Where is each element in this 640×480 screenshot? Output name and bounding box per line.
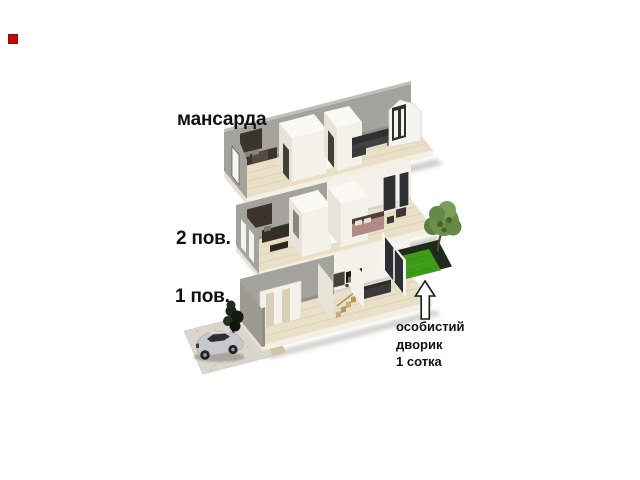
red-marker: [8, 34, 18, 44]
label-floor2: 2 пов.: [176, 228, 231, 250]
floor2-window: [399, 171, 409, 208]
annotation-line-1: особистий: [396, 318, 465, 336]
annotation-line-3: 1 сотка: [396, 353, 465, 371]
courtyard-annotation: особистий дворик 1 сотка: [396, 318, 465, 371]
label-floor1: 1 пов.: [175, 286, 230, 308]
annotation-line-2: дворик: [396, 336, 465, 354]
floor2-window: [383, 174, 396, 212]
floorplan-poster: мансарда 2 пов. 1 пов. особистий дворик …: [0, 0, 640, 480]
label-attic: мансарда: [177, 109, 266, 131]
floorplan-scene: [0, 0, 640, 480]
